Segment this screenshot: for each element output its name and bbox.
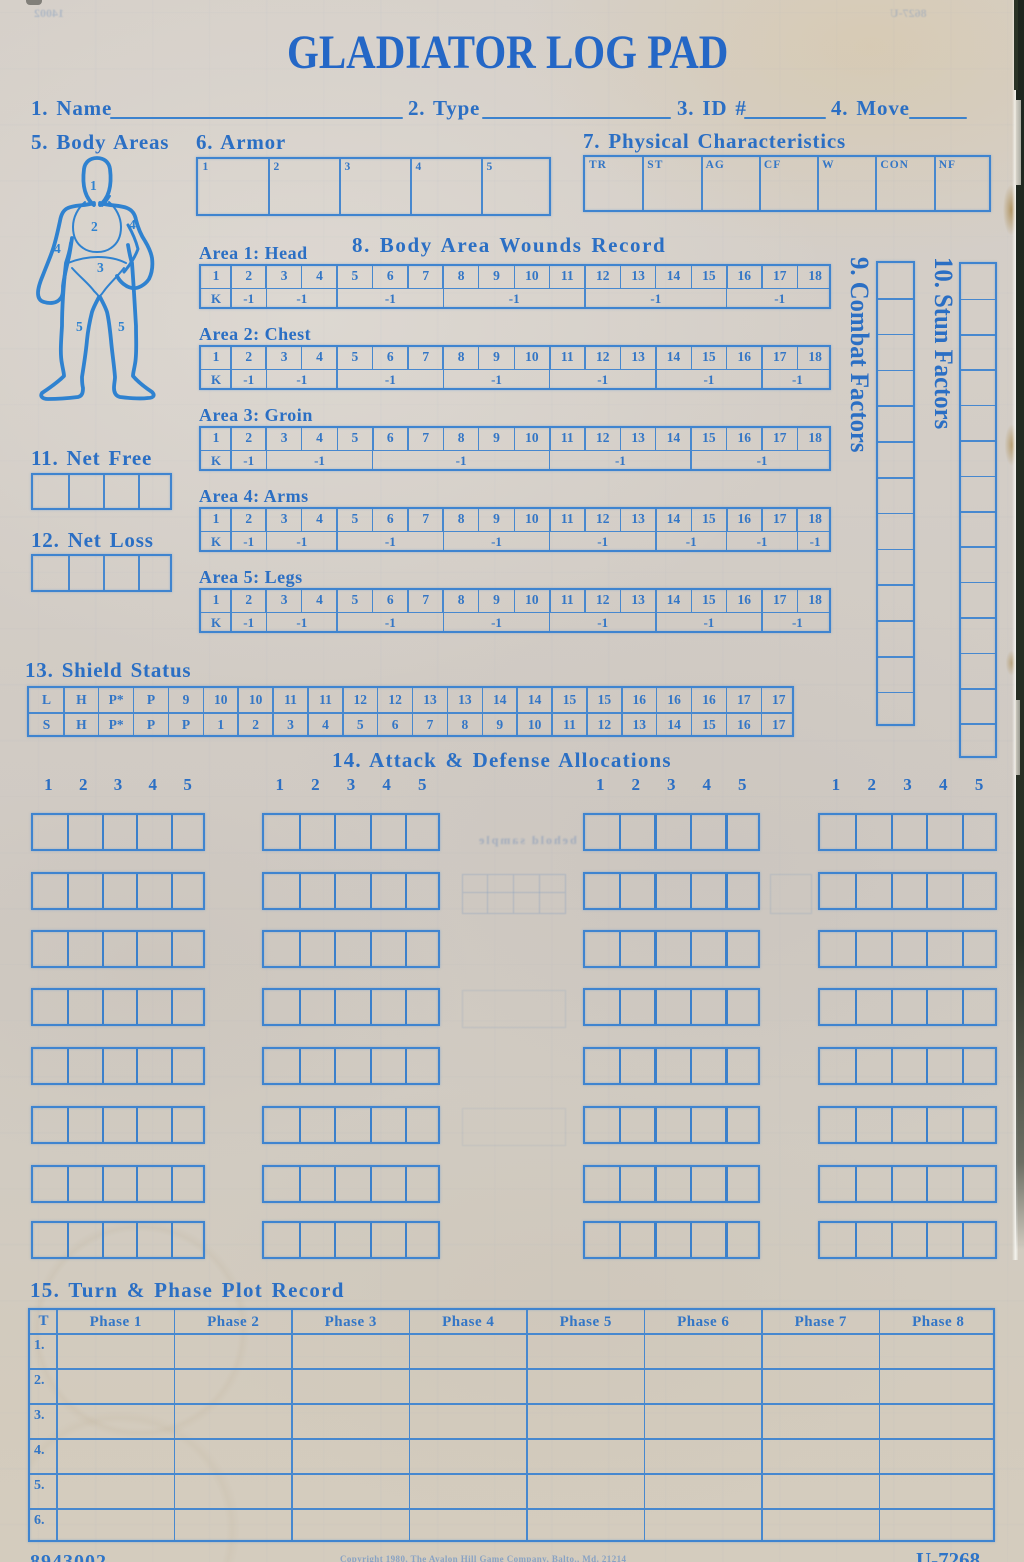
svg-text:4: 4 xyxy=(129,217,136,232)
svg-text:4: 4 xyxy=(54,241,61,256)
svg-text:5: 5 xyxy=(118,319,125,334)
svg-text:5: 5 xyxy=(76,319,83,334)
svg-text:3: 3 xyxy=(97,260,104,275)
svg-text:2: 2 xyxy=(91,219,98,234)
svg-text:1: 1 xyxy=(90,178,97,193)
